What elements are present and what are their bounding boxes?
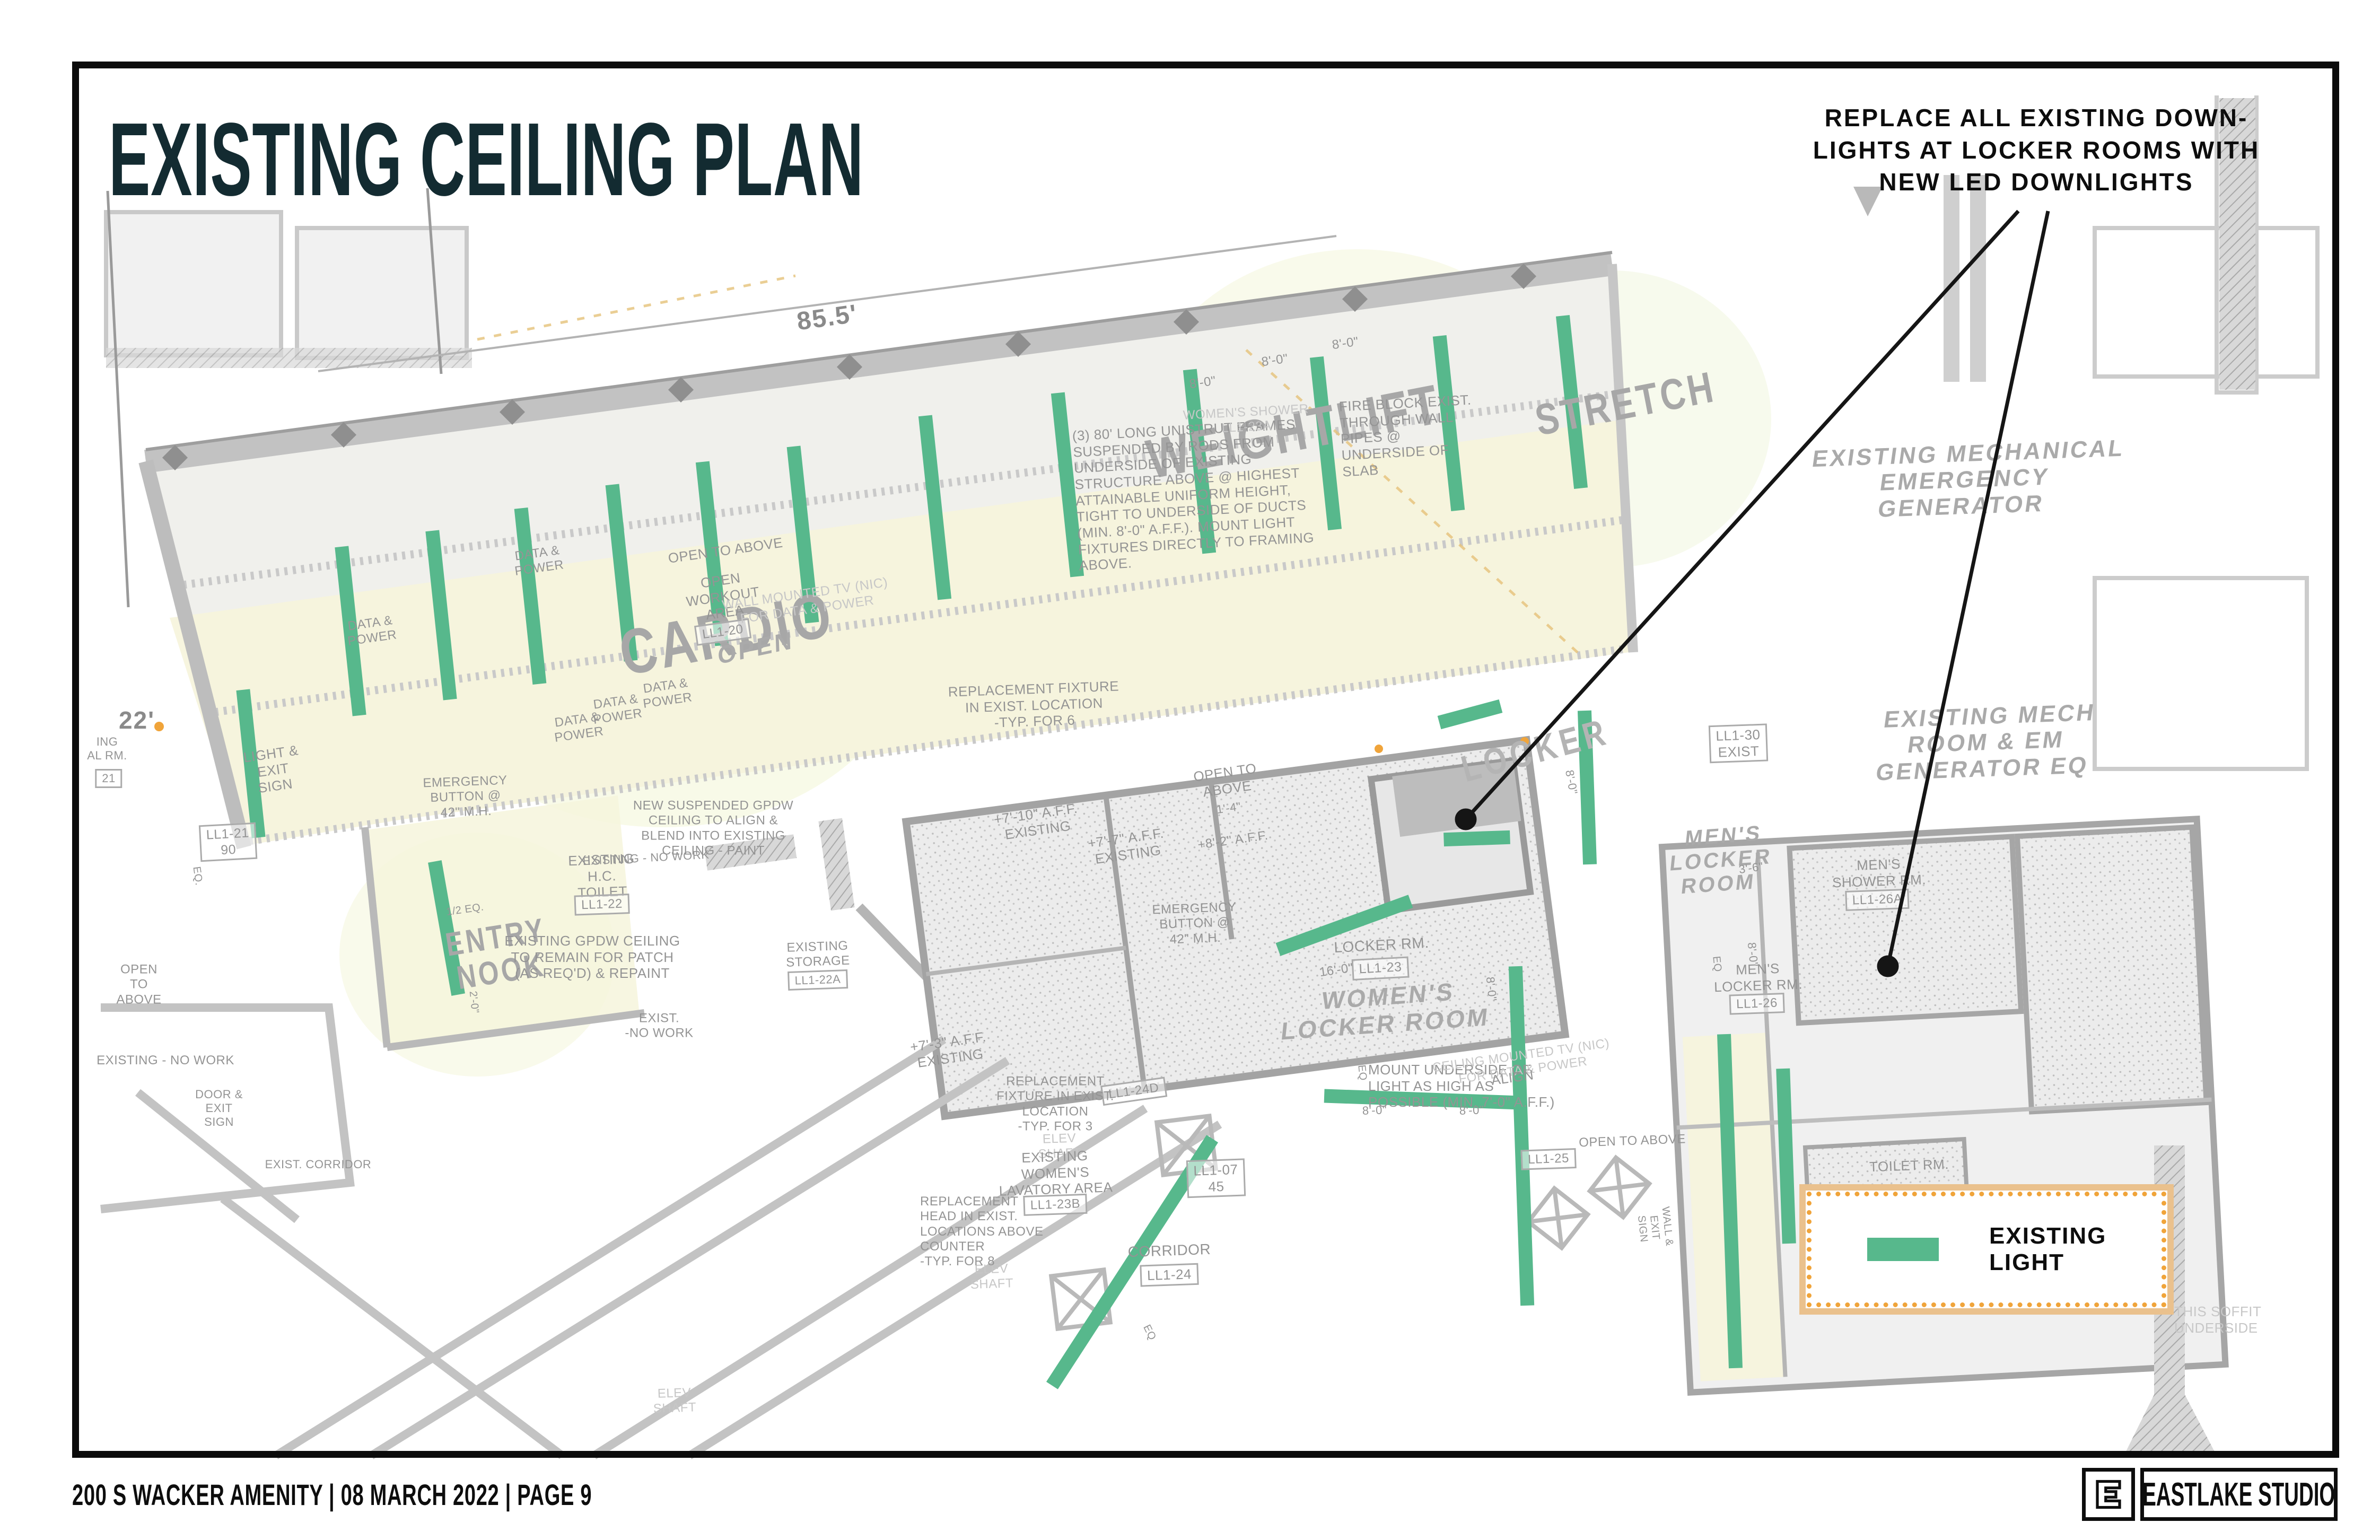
- existing-light-swatch: [1867, 1238, 1939, 1261]
- legend-box: EXISTING LIGHT: [1799, 1184, 2174, 1315]
- eastlake-logo-icon: [2082, 1468, 2135, 1521]
- annotation-note: REPLACE ALL EXISTING DOWN- LIGHTS AT LOC…: [1755, 102, 2317, 198]
- footer-text: 200 S WACKER AMENITY | 08 MARCH 2022 | P…: [72, 1477, 592, 1512]
- legend-inner: EXISTING LIGHT: [1807, 1192, 2166, 1307]
- page-title: EXISTING CEILING PLAN: [109, 100, 864, 219]
- eastlake-logo-text: EASTLAKE STUDIO: [2140, 1468, 2338, 1521]
- legend-label: EXISTING LIGHT: [1989, 1223, 2162, 1276]
- slide: CARDIOWEIGHTLIFTSTRETCHENTRY NOOKLOCKERE…: [0, 0, 2380, 1540]
- eastlake-logo: EASTLAKE STUDIO: [2082, 1468, 2338, 1521]
